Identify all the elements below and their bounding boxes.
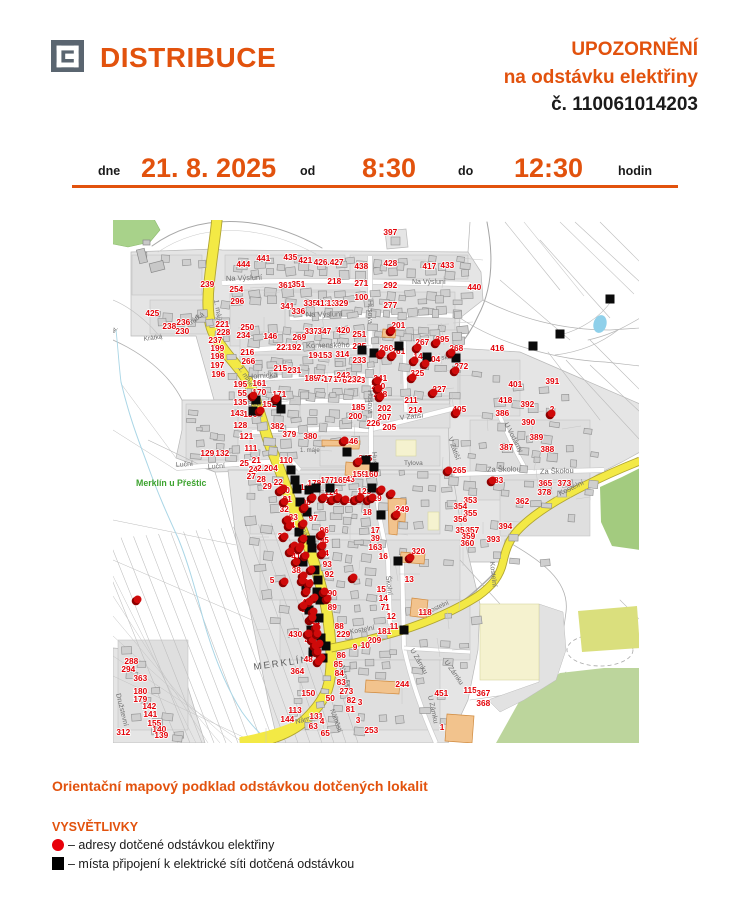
svg-text:92: 92 [325,569,335,579]
svg-text:351: 351 [291,279,305,289]
svg-text:150: 150 [301,688,315,698]
svg-text:433: 433 [440,260,454,270]
svg-text:360: 360 [460,538,474,548]
svg-text:417: 417 [422,261,436,271]
svg-text:441: 441 [256,253,270,263]
svg-text:254: 254 [229,284,243,294]
svg-text:426.427: 426.427 [314,257,344,267]
svg-text:425: 425 [145,308,159,318]
svg-text:4: 4 [320,716,325,726]
svg-text:233: 233 [352,355,366,365]
svg-text:364: 364 [290,666,304,676]
svg-text:128: 128 [233,420,247,430]
svg-text:50: 50 [326,693,336,703]
svg-text:296: 296 [230,296,244,306]
svg-text:115: 115 [463,685,477,695]
svg-text:397: 397 [383,227,397,237]
svg-text:13: 13 [405,574,415,584]
svg-text:392: 392 [520,399,534,409]
svg-text:269: 269 [292,332,306,342]
svg-text:Luční: Luční [176,461,194,469]
svg-text:380: 380 [303,431,317,441]
svg-text:1: 1 [440,722,445,732]
svg-text:129: 129 [200,448,214,458]
svg-text:271: 271 [354,278,368,288]
svg-text:265: 265 [452,465,466,475]
svg-text:244: 244 [395,679,409,689]
svg-text:393: 393 [486,534,500,544]
svg-text:161: 161 [252,378,266,388]
svg-text:401: 401 [508,379,522,389]
svg-text:420: 420 [336,325,350,335]
svg-text:418: 418 [498,395,512,405]
svg-text:388: 388 [540,444,554,454]
svg-text:18: 18 [363,507,373,517]
svg-text:362: 362 [515,496,529,506]
svg-text:139: 139 [154,730,168,740]
svg-text:314: 314 [335,349,349,359]
svg-text:Husova: Husova [366,390,373,414]
svg-text:111: 111 [244,443,257,453]
svg-text:12: 12 [387,611,397,621]
svg-text:253: 253 [364,725,378,735]
svg-text:378: 378 [537,487,551,497]
svg-text:231: 231 [287,365,301,375]
svg-text:132: 132 [215,448,229,458]
svg-text:Na Výsluní: Na Výsluní [306,309,343,319]
svg-text:312: 312 [116,727,130,737]
svg-text:389: 389 [529,432,543,442]
svg-text:347: 347 [317,326,331,336]
svg-text:386: 386 [495,408,509,418]
svg-text:200: 200 [348,411,362,421]
svg-text:3: 3 [358,697,363,707]
svg-text:211: 211 [404,395,418,405]
svg-text:229: 229 [336,629,350,639]
svg-text:444: 444 [236,259,250,269]
svg-text:421: 421 [298,255,312,265]
svg-text:438: 438 [354,261,368,271]
svg-text:Za Školou: Za Školou [487,464,521,474]
svg-text:379: 379 [282,429,296,439]
svg-text:5: 5 [270,575,275,585]
svg-text:135: 135 [233,397,247,407]
svg-text:Na Výsluní: Na Výsluní [226,273,263,283]
svg-text:89: 89 [328,602,338,612]
svg-text:121: 121 [239,431,253,441]
svg-text:428: 428 [383,258,397,268]
svg-text:9: 9 [353,642,358,652]
svg-text:81: 81 [346,704,356,714]
svg-text:363: 363 [133,673,147,683]
svg-text:451: 451 [434,688,448,698]
svg-text:100: 100 [354,292,368,302]
svg-text:215: 215 [273,363,287,373]
svg-text:356: 356 [453,514,467,524]
svg-text:430: 430 [288,629,302,639]
svg-text:65: 65 [321,728,331,738]
svg-text:214: 214 [408,405,422,415]
svg-text:Merklín u Přeštic: Merklín u Přeštic [136,478,207,488]
svg-text:Za Školou: Za Školou [540,466,574,476]
svg-text:435: 435 [283,252,297,262]
svg-text:440: 440 [467,282,481,292]
svg-text:239: 239 [200,279,214,289]
svg-text:230: 230 [175,326,189,336]
svg-text:196: 196 [211,369,225,379]
svg-text:205: 205 [382,422,396,432]
svg-text:373: 373 [557,478,571,488]
svg-text:110: 110 [279,455,293,465]
svg-text:218: 218 [327,276,341,286]
svg-text:146: 146 [263,331,277,341]
svg-text:10: 10 [361,640,371,650]
svg-text:226: 226 [366,418,380,428]
svg-text:368: 368 [476,698,490,708]
svg-text:Husova: Husova [366,300,373,324]
svg-text:93: 93 [323,559,333,569]
svg-text:144: 144 [280,714,294,724]
svg-text:2.204: 2.204 [257,463,278,473]
svg-text:232: 232 [347,374,361,384]
svg-text:3: 3 [356,715,361,725]
svg-text:Luční: Luční [208,463,226,471]
svg-text:Na Výsluní: Na Výsluní [412,279,446,286]
svg-text:29: 29 [263,481,273,491]
svg-text:277: 277 [383,300,397,310]
svg-text:118: 118 [418,607,432,617]
svg-text:1. máje: 1. máje [300,448,320,454]
svg-text:387: 387 [499,442,513,452]
svg-text:336: 336 [291,306,305,316]
svg-text:234: 234 [236,330,250,340]
svg-text:27: 27 [247,471,257,481]
svg-text:16: 16 [379,551,389,561]
svg-text:329: 329 [334,298,348,308]
svg-text:390: 390 [521,417,535,427]
svg-text:153: 153 [318,350,332,360]
svg-text:292: 292 [383,280,397,290]
svg-text:192: 192 [287,342,301,352]
svg-text:391: 391 [545,376,559,386]
svg-text:63: 63 [309,721,319,731]
svg-text:394: 394 [498,521,512,531]
svg-text:416: 416 [490,343,504,353]
svg-text:320: 320 [411,546,425,556]
svg-text:266: 266 [241,356,255,366]
svg-text:367: 367 [476,688,490,698]
svg-text:251: 251 [352,329,366,339]
svg-text:Tylova: Tylova [404,460,423,467]
